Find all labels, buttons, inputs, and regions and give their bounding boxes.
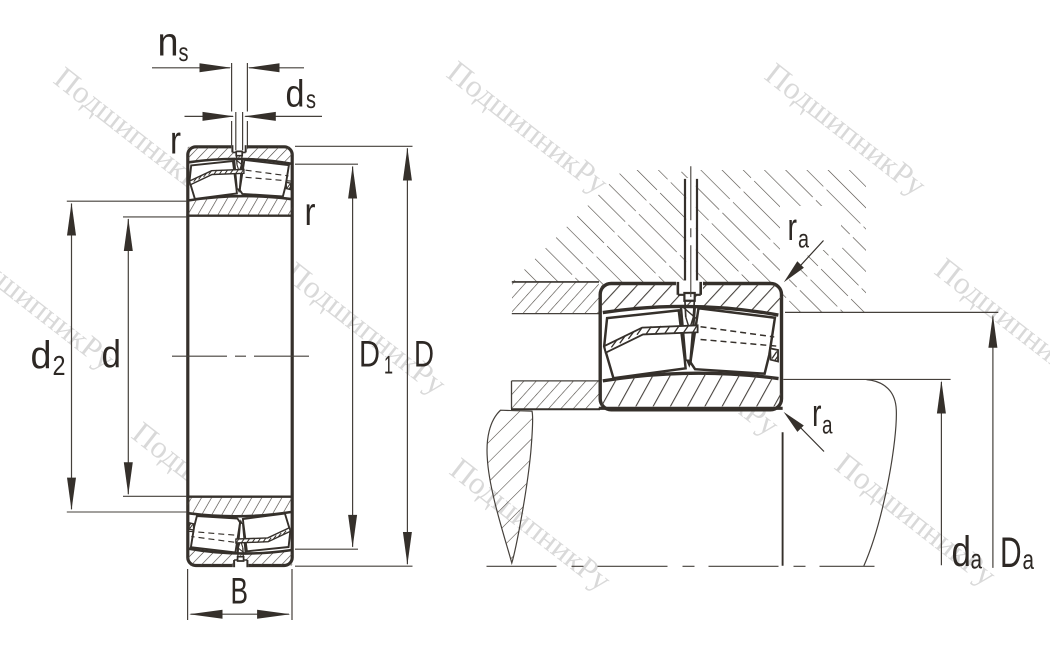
svg-text:a: a	[822, 410, 833, 440]
svg-text:a: a	[1023, 544, 1035, 575]
svg-text:a: a	[971, 544, 983, 575]
svg-text:D: D	[359, 334, 380, 375]
svg-text:n: n	[158, 21, 179, 65]
svg-text:d: d	[31, 335, 52, 378]
svg-text:d: d	[952, 528, 972, 576]
svg-text:d: d	[102, 334, 122, 377]
svg-text:1: 1	[384, 352, 393, 380]
svg-text:B: B	[231, 571, 249, 612]
svg-text:ПодшипникРу: ПодшипникРу	[444, 451, 619, 598]
svg-text:r: r	[788, 207, 798, 249]
svg-text:s: s	[306, 84, 316, 114]
svg-text:r: r	[305, 191, 316, 234]
svg-text:s: s	[179, 37, 189, 67]
svg-text:D: D	[414, 334, 434, 375]
svg-text:D: D	[1000, 529, 1022, 577]
svg-text:a: a	[798, 223, 809, 253]
svg-text:ПодшипникРу: ПодшипникРу	[929, 251, 1050, 398]
svg-text:2: 2	[53, 350, 66, 381]
svg-text:ПодшипникРу: ПодшипникРу	[279, 255, 454, 402]
svg-text:ПодшипникРу: ПодшипникРу	[441, 54, 616, 201]
svg-text:d: d	[286, 74, 305, 116]
svg-text:r: r	[812, 393, 822, 435]
svg-text:r: r	[170, 120, 181, 163]
